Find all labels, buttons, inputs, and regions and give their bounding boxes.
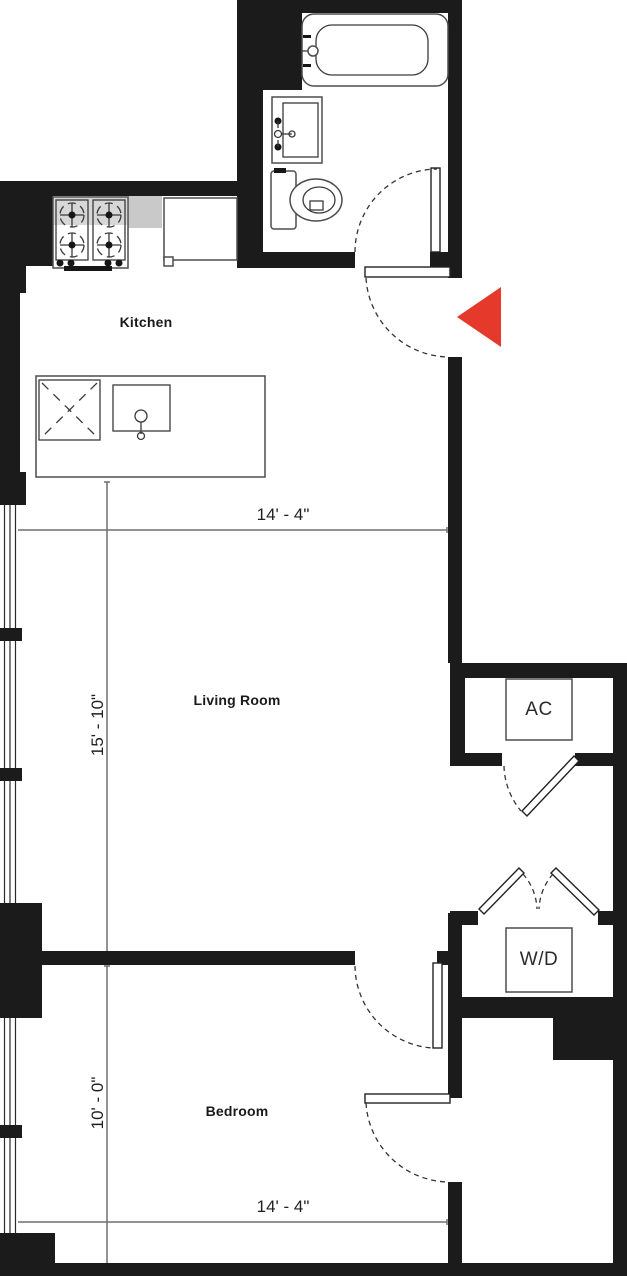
living-room-width-dimension: 14' - 4" (257, 505, 310, 525)
stove-icon (53, 197, 128, 271)
bathtub-icon (302, 14, 448, 86)
washer-dryer-doors (479, 868, 599, 915)
bedroom-closet-door (365, 1094, 450, 1182)
entry-arrow-icon (457, 287, 501, 347)
bedroom-height-dimension: 10' - 0" (88, 1077, 108, 1130)
toilet-icon (271, 168, 342, 229)
dimension-lines (18, 482, 447, 1263)
washer-dryer-label: W/D (520, 949, 558, 971)
living-room-height-dimension: 15' - 10" (88, 694, 108, 756)
entry-door (365, 267, 450, 357)
kitchen-label: Kitchen (120, 314, 173, 330)
ac-closet-door (504, 756, 579, 816)
living-room-label: Living Room (194, 692, 281, 708)
floor-plan: Kitchen Living Room Bedroom AC W/D 14' -… (0, 0, 627, 1276)
kitchen-island (36, 376, 265, 477)
ac-closet-label: AC (525, 699, 552, 721)
bathroom-sink-icon (272, 97, 322, 163)
bedroom-label: Bedroom (206, 1103, 269, 1119)
kitchen-counter (128, 196, 237, 266)
bathroom-door (355, 168, 440, 252)
window-icon (5, 505, 16, 1233)
bedroom-width-dimension: 14' - 4" (257, 1197, 310, 1217)
bedroom-door (355, 963, 442, 1048)
